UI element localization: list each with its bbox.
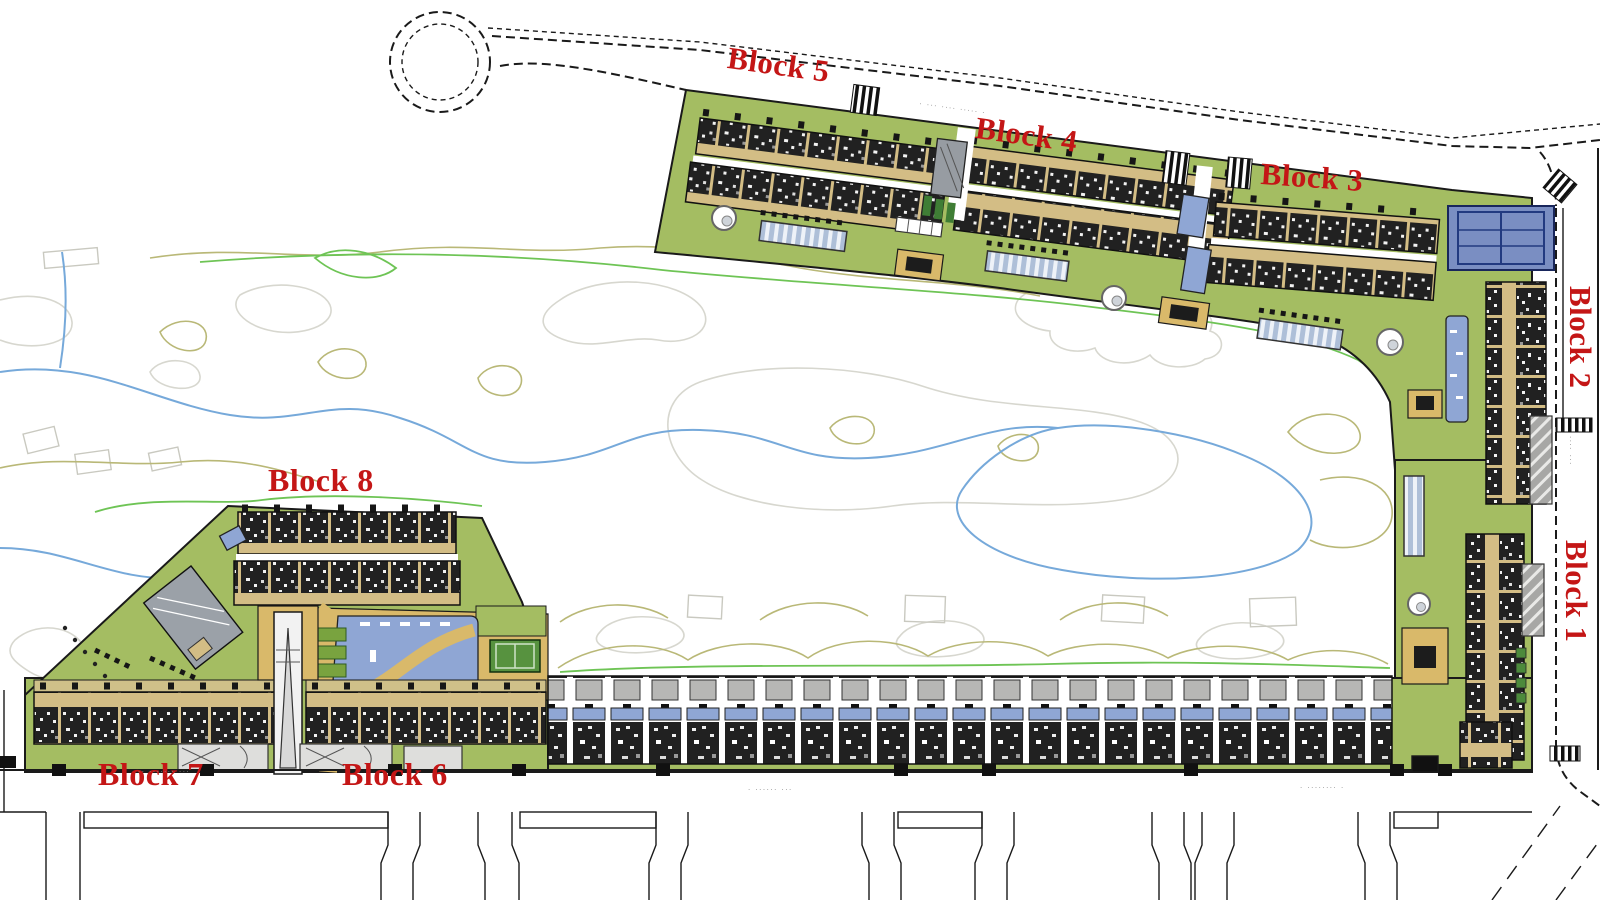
block8-buildings: [234, 508, 460, 605]
corner-building: [1460, 722, 1512, 768]
crosswalk-top-2: [1162, 151, 1190, 186]
plaza-block5: [895, 249, 944, 281]
parking-strip-2: [1522, 564, 1544, 636]
label-block-8: Block 8: [268, 464, 374, 496]
label-block-6: Block 6: [342, 758, 448, 790]
street-label-bottom-left: ·· ······· ···: [138, 768, 190, 776]
street-label-bottom-right: · ········ ·: [1300, 784, 1345, 792]
crosswalk-bottom-right: [1412, 756, 1438, 772]
bottom-road: [0, 764, 1532, 828]
block7-buildings: [34, 680, 278, 744]
site-plan-svg: [0, 0, 1600, 900]
block8-row-2: [234, 561, 460, 605]
block8-sport-court: [490, 640, 540, 672]
label-block-1: Block 1: [1561, 540, 1592, 643]
left-road: [0, 690, 16, 812]
label-block-3: Block 3: [1260, 158, 1364, 196]
swimming-pool-1: [1177, 194, 1209, 238]
cul-de-sac: [390, 12, 490, 112]
plaza-corner: [1408, 390, 1442, 418]
parking-strip-1: [1530, 416, 1552, 504]
label-block-2: Block 2: [1565, 286, 1596, 389]
fountain-4: [1408, 593, 1430, 615]
lap-pool-right-band: [1404, 476, 1424, 556]
street-label-bottom-center: · ······ ···: [748, 786, 793, 794]
site-plan: Block 5 Block 4 Block 3 Block 2 Block 1 …: [0, 0, 1600, 900]
fountain-2: [1102, 286, 1126, 310]
crosswalk-right-2: [1550, 746, 1580, 761]
crosswalk-top-3: [1226, 157, 1253, 189]
street-label-right-road: ···· ···: [1566, 436, 1574, 466]
sun-deck-block1: [1402, 628, 1448, 684]
block8-row-1: [238, 512, 456, 554]
tennis-court: [1448, 206, 1554, 270]
crosswalk-corner: [1543, 169, 1577, 203]
fountain-3: [1377, 329, 1403, 355]
townhouse-row: [548, 676, 1392, 764]
lake-outline: [957, 426, 1312, 579]
crosswalk-top-1: [850, 84, 879, 115]
crosswalk-right-1: [1556, 418, 1592, 432]
block6-buildings: [306, 680, 546, 744]
fountain-1: [712, 206, 736, 230]
